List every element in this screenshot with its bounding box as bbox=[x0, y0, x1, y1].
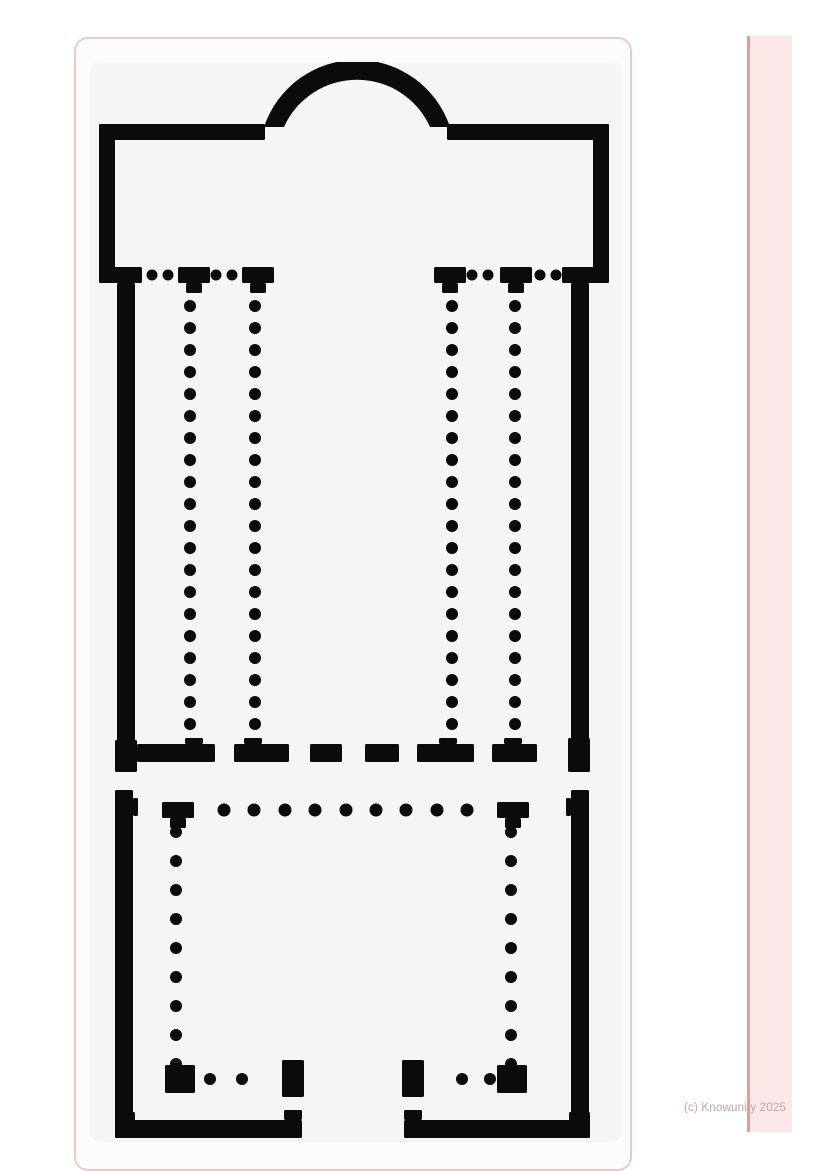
page-edge-strip bbox=[747, 36, 792, 1132]
basilica-floor-plan-image[interactable] bbox=[90, 62, 622, 1142]
watermark-text: (c) Knowunity 2025 bbox=[684, 1102, 786, 1114]
floor-plan-svg bbox=[90, 62, 622, 1142]
plan-apse-arc bbox=[264, 62, 450, 127]
plan-column-dots bbox=[147, 270, 562, 1086]
plan-walls bbox=[99, 124, 609, 1138]
note-card bbox=[74, 37, 632, 1171]
